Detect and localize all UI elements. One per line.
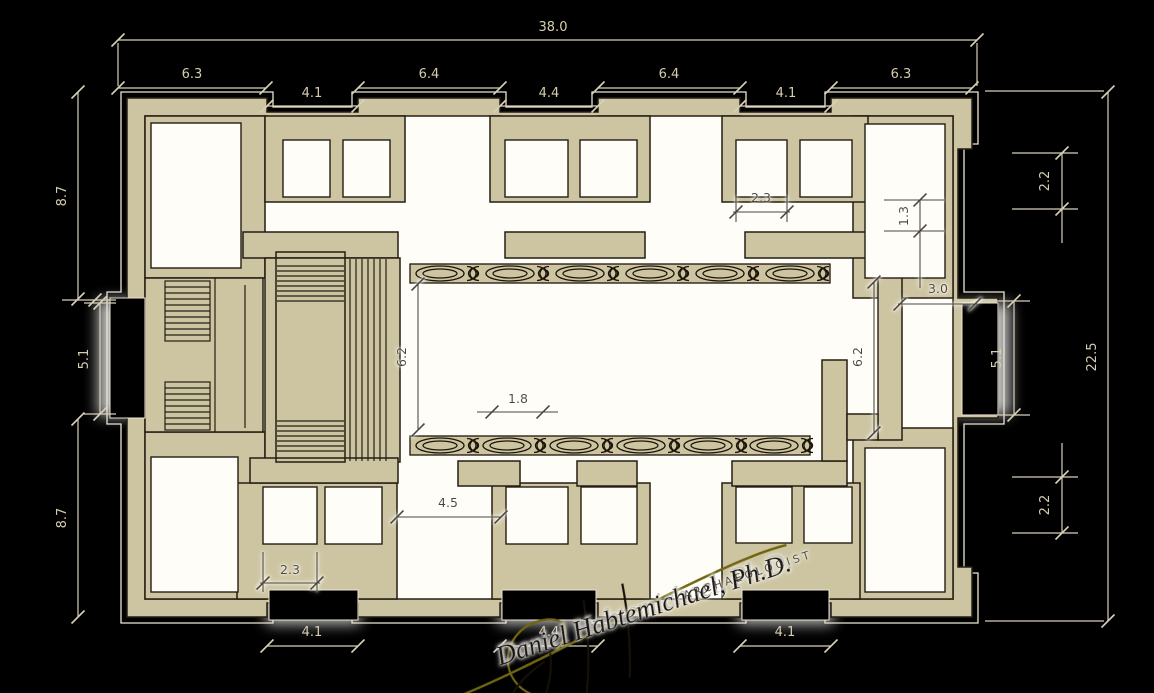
dim-nave-east: 6.2 [850, 347, 865, 367]
dim-left-3: 8.7 [55, 508, 70, 529]
south-opening-1 [269, 590, 358, 620]
east-partition-wall-lower [822, 360, 847, 461]
floor-plan-canvas: 38.0 6.3 4.1 6.4 4.4 6.4 4.1 6.3 8.7 5.1… [0, 0, 1154, 693]
dim-south-bay: 4.5 [438, 495, 458, 510]
dim-right-2: 5.1 [990, 348, 1005, 369]
room-northeast [865, 124, 945, 278]
south-chamber-2b [581, 487, 637, 544]
dim-bottom-1: 4.1 [302, 625, 323, 640]
room-northwest [151, 123, 241, 268]
east-partition-connector [847, 414, 878, 440]
dim-right-total: 22.5 [1085, 343, 1100, 372]
dim-top-recess-3: 4.1 [776, 86, 797, 101]
south-bench-2 [577, 461, 637, 486]
dim-top-proj-3: 6.4 [659, 67, 680, 82]
north-chamber-2a [505, 140, 568, 197]
north-chamber-1b [343, 140, 390, 197]
floor-plan-page: 38.0 6.3 4.1 6.4 4.4 6.4 4.1 6.3 8.7 5.1… [0, 0, 1154, 693]
north-chamber-1a [283, 140, 330, 197]
north-chamber-3a [736, 140, 787, 197]
north-chamber-3b [800, 140, 852, 197]
south-chamber-3b [804, 487, 852, 543]
south-bench-3 [732, 461, 847, 486]
dim-left-2: 5.1 [77, 349, 92, 370]
dim-top-proj-1: 6.3 [182, 67, 203, 82]
room-southeast [865, 448, 945, 592]
dim-chamber-top: 2.3 [751, 190, 771, 205]
north-bench-1 [505, 232, 645, 258]
south-chamber-1a [263, 487, 317, 544]
colonnade-north [410, 264, 830, 283]
dim-top-total: 38.0 [539, 20, 568, 35]
dim-right-3: 2.2 [1038, 495, 1053, 516]
south-opening-3 [742, 590, 829, 620]
dim-nave-west: 6.2 [394, 347, 409, 367]
dim-top-proj-4: 6.3 [891, 67, 912, 82]
south-chamber-2a [506, 487, 568, 544]
dim-left-1: 8.7 [55, 186, 70, 207]
dim-chamber-bottom: 2.3 [280, 562, 300, 577]
colonnade-south [410, 436, 813, 455]
north-chamber-2b [580, 140, 637, 197]
room-southwest [151, 457, 238, 592]
south-chamber-1b [325, 487, 382, 544]
west-entrance-opening [110, 298, 145, 418]
dim-top-recess-2: 4.4 [539, 86, 560, 101]
south-bench-1 [458, 461, 520, 486]
dim-top-recess-1: 4.1 [302, 86, 323, 101]
dim-right-1: 2.2 [1038, 171, 1053, 192]
dim-bottom-3: 4.1 [775, 625, 796, 640]
north-bench-2 [745, 232, 877, 258]
dim-step: 1.3 [896, 206, 911, 226]
podium-north-flange [243, 232, 398, 258]
dim-passage: 3.0 [928, 281, 948, 296]
south-chamber-3a [736, 487, 792, 543]
podium-ramp-lines [350, 259, 386, 461]
dim-top-proj-2: 6.4 [419, 67, 440, 82]
dim-column-gap: 1.8 [508, 391, 528, 406]
